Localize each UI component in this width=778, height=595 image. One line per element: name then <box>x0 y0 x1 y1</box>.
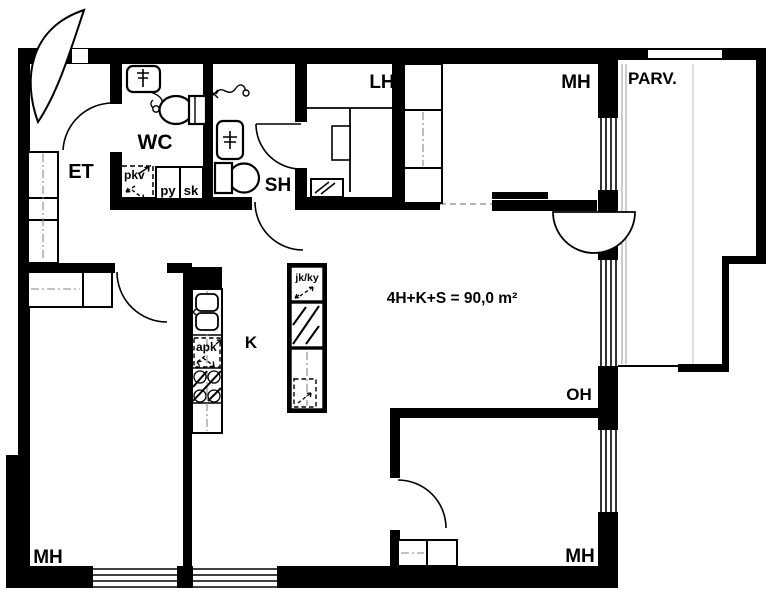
sauna-door-arc <box>256 124 301 169</box>
wardrobe <box>404 168 442 203</box>
room-label-mh-bottom-left: MH <box>33 547 63 568</box>
wc-door-arc <box>63 103 112 150</box>
shower-head-icon <box>243 90 249 96</box>
sh-fixtures <box>210 85 259 193</box>
wall-segment <box>110 64 122 104</box>
sliding-door-leaf <box>492 192 548 199</box>
sink-bowl-icon <box>196 294 218 311</box>
shower-hose-icon <box>216 85 245 94</box>
room-label-et: ET <box>68 161 94 183</box>
appliance-label-jkky: jk/ky <box>294 272 319 284</box>
window-mh-bottom-right <box>598 430 618 512</box>
room-label-oh: OH <box>566 385 592 404</box>
room-label-parv: PARV. <box>628 69 677 88</box>
balcony-door-arc <box>553 212 635 253</box>
balcony-top-opening <box>648 50 722 58</box>
toilet-tank-icon <box>215 163 232 193</box>
wall-segment <box>183 273 192 566</box>
entrance-opening <box>72 49 88 63</box>
area-label: 4H+K+S = 90,0 m² <box>387 290 518 307</box>
sauna-heater-icon <box>311 179 343 197</box>
wall-segment <box>390 408 598 418</box>
room-label-mh-top: MH <box>561 72 591 93</box>
wall-segment <box>295 64 307 122</box>
window-oh <box>598 260 618 366</box>
room-label-sh: SH <box>265 175 291 196</box>
wall-segment <box>167 263 192 273</box>
sink-bowl-icon <box>196 313 218 330</box>
floor-plan-svg: ET WC SH LH MH PARV. K 4H+K+S = 90,0 m² … <box>0 0 778 595</box>
wardrobe <box>83 272 112 307</box>
closet-label-py: py <box>160 183 176 198</box>
wall-segment <box>18 48 598 64</box>
room-label-wc: WC <box>138 131 173 154</box>
mh-bottom-right-door-arc <box>398 480 446 528</box>
toilet-icon <box>229 164 259 193</box>
toilet-tank-icon <box>189 96 206 124</box>
window-kitchen <box>193 566 277 588</box>
room-label-mh-bottom-right: MH <box>565 546 595 567</box>
wall-segment <box>678 364 729 372</box>
window-mh-top <box>598 118 618 190</box>
appliance-label-apk: apk <box>196 340 217 354</box>
closet-label-sk: sk <box>184 183 199 198</box>
room-label-k: K <box>245 333 258 352</box>
sauna-fixtures <box>307 108 392 197</box>
labels: ET WC SH LH MH PARV. K 4H+K+S = 90,0 m² … <box>33 69 677 568</box>
entrance-door-leaf <box>31 10 84 122</box>
floor-plan: ET WC SH LH MH PARV. K 4H+K+S = 90,0 m² … <box>0 0 778 595</box>
closet-label-pkv: pkv <box>124 168 145 182</box>
wall-segment <box>722 256 729 372</box>
sauna-bench-step <box>332 126 350 160</box>
room-label-lh: LH <box>369 72 394 93</box>
wardrobe <box>404 64 442 110</box>
wardrobe <box>427 540 457 566</box>
window-mh-bottom-left <box>93 566 177 588</box>
wall-segment <box>390 418 400 478</box>
wall-segment <box>203 64 213 197</box>
wall-segment <box>756 48 766 264</box>
toilet-icon <box>160 96 193 124</box>
walls <box>6 48 766 588</box>
wall-segment <box>492 200 597 211</box>
mh-left-door-arc <box>117 272 167 322</box>
wc-fixtures <box>127 66 206 124</box>
drain-icon <box>153 106 159 112</box>
wall-segment <box>192 267 222 289</box>
